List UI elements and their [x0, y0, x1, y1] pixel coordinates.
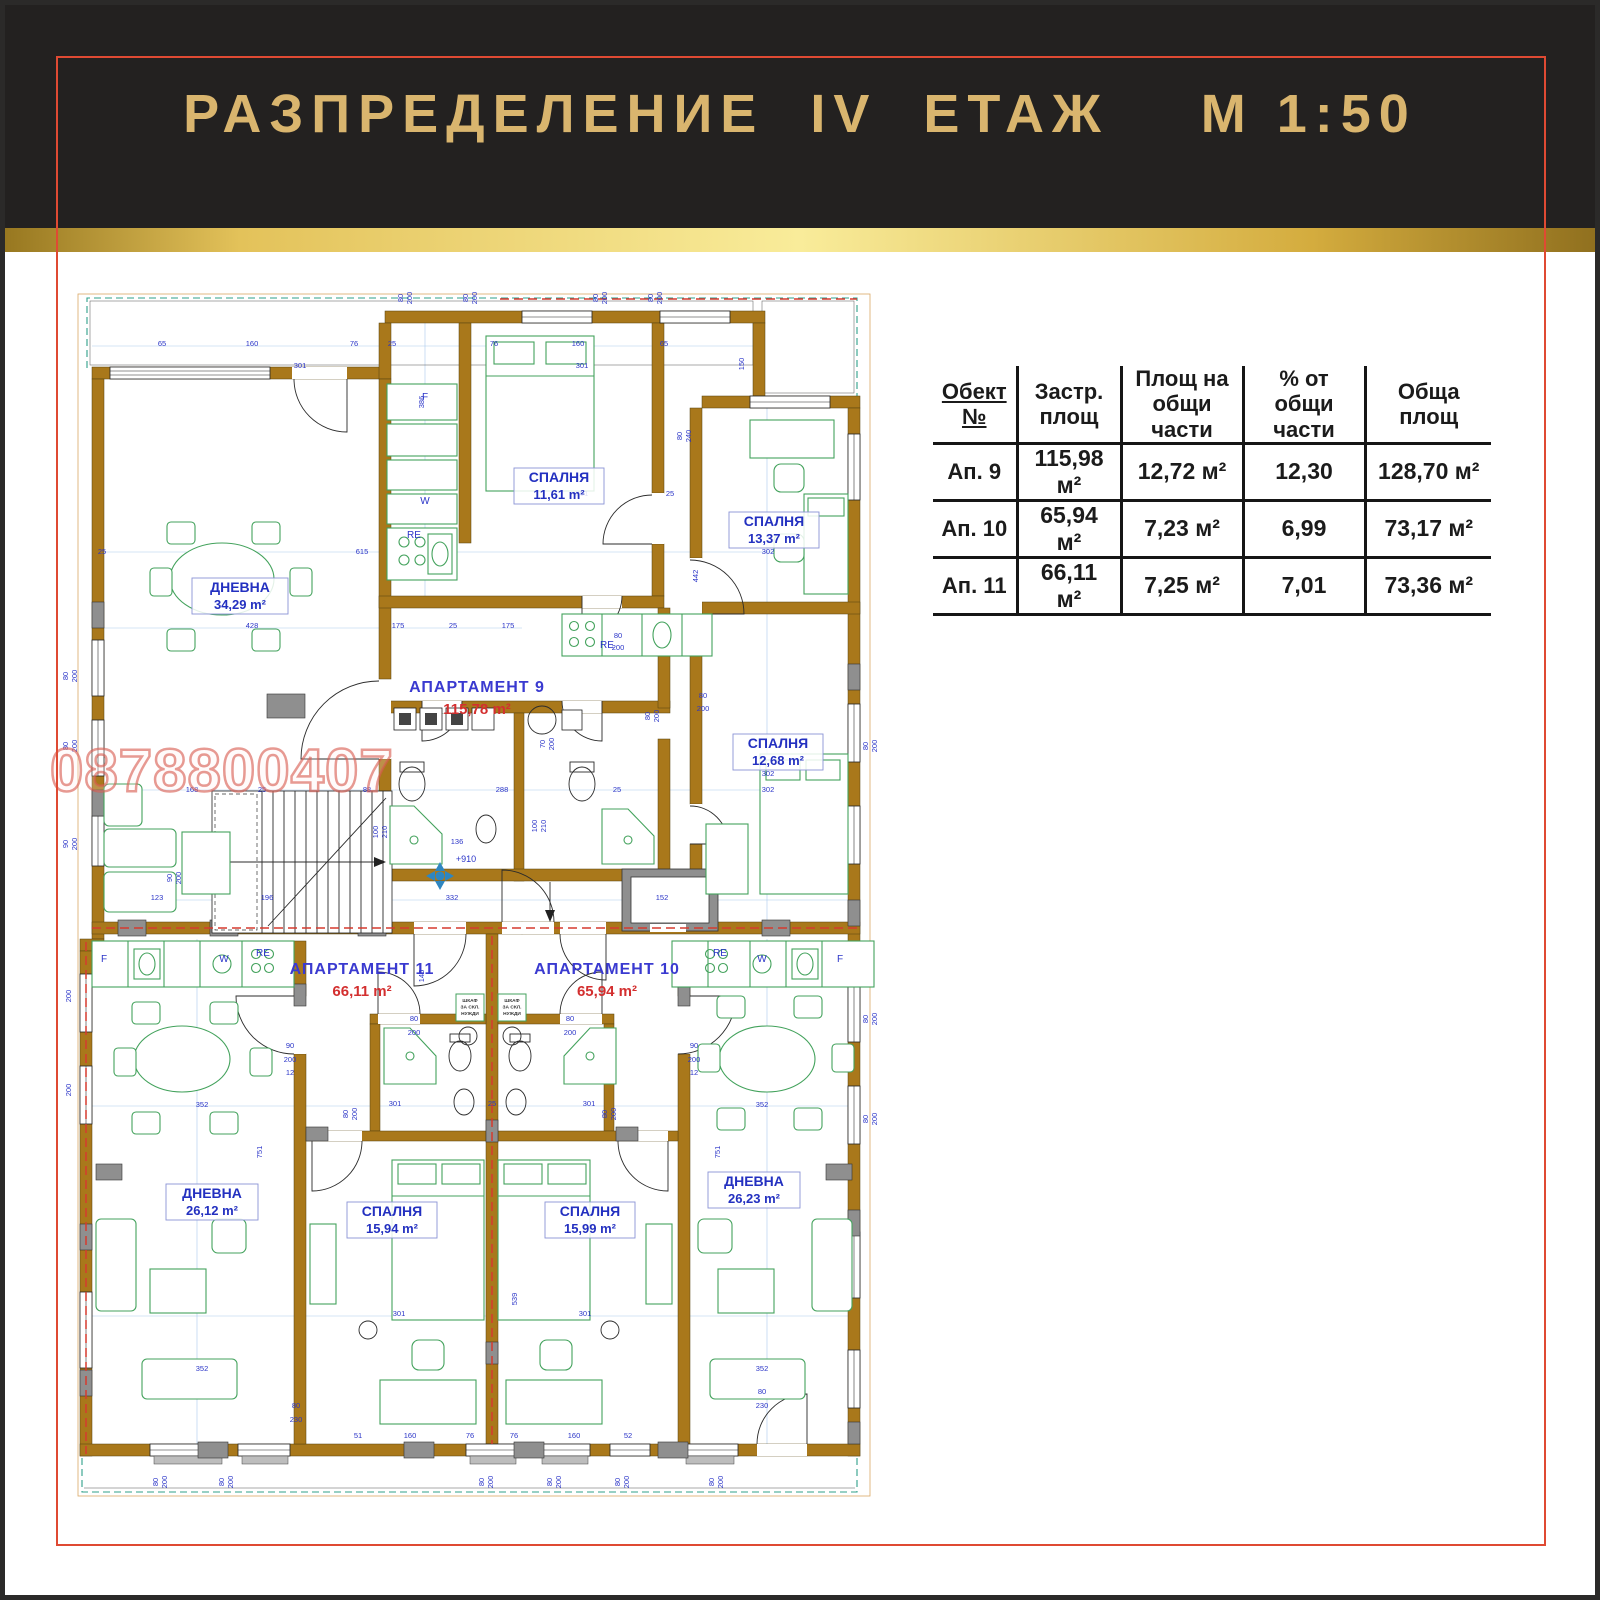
plan-text: 751 — [255, 1146, 264, 1159]
plan-text: 90 — [62, 840, 70, 848]
plan-text: 26,23 m² — [728, 1191, 781, 1206]
table-cell: 128,70 м² — [1365, 443, 1491, 500]
plan-text: СПАЛНЯ — [362, 1203, 422, 1219]
plan-text: RE — [600, 640, 614, 651]
plan-text: 88 — [363, 785, 371, 794]
plan-text: 200 — [486, 1476, 495, 1489]
plan-text: ШКАФ — [462, 998, 477, 1004]
gold-divider — [0, 228, 1600, 252]
plan-text: 200 — [226, 1476, 235, 1489]
plan-text: НУЖДИ — [503, 1011, 521, 1017]
plan-text: СПАЛНЯ — [748, 735, 808, 751]
plan-text: 352 — [196, 1364, 209, 1373]
plan-text: 160 — [572, 339, 585, 348]
plan-text: 160 — [568, 1431, 581, 1440]
plan-text: 200 — [70, 740, 79, 753]
plan-text: 210 — [539, 820, 548, 833]
plan-text: 15,94 m² — [366, 1221, 419, 1236]
plan-text: ДНЕВНА — [182, 1185, 242, 1201]
plan-text: 76 — [466, 1431, 474, 1440]
plan-text: 80 — [699, 691, 707, 700]
table-cell: Ап. 11 — [933, 557, 1017, 614]
plan-text: 301 — [576, 361, 589, 370]
plan-text: 196 — [261, 893, 274, 902]
plan-text: F — [837, 954, 843, 965]
plan-text: 80 — [477, 1478, 486, 1486]
plan-text: 80 — [675, 432, 684, 440]
plan-text: СПАЛНЯ — [560, 1203, 620, 1219]
plan-text: 302 — [762, 785, 775, 794]
table-row: Ап. 9115,98 м²12,72 м²12,30128,70 м² — [933, 443, 1491, 500]
plan-text: F — [101, 954, 107, 965]
table-row: Ап. 1166,11 м²7,25 м²7,0173,36 м² — [933, 557, 1491, 614]
plan-text: 80 — [62, 672, 70, 680]
plan-text: 200 — [284, 1055, 297, 1064]
plan-text: 200 — [564, 1028, 577, 1037]
plan-text: 100 — [371, 826, 380, 839]
plan-text: 80 — [861, 1015, 870, 1023]
plan-text: 200 — [405, 292, 414, 305]
plan-text: 200 — [64, 990, 73, 1003]
table-header-row: Обект №Застр. площПлощ на общи части% от… — [933, 366, 1491, 443]
staircase — [212, 791, 392, 933]
plan-text: 25 — [666, 489, 674, 498]
plan-text: ДНЕВНА — [724, 1173, 784, 1189]
plan-text: 66,11 m² — [332, 983, 391, 1000]
plan-text: 428 — [246, 621, 259, 630]
plan-text: ШКАФ — [504, 998, 519, 1004]
plan-text: 168 — [186, 785, 199, 794]
plan-text: 80 — [217, 1478, 226, 1486]
plan-text: 80 — [861, 742, 870, 750]
plan-text: 240 — [684, 430, 693, 443]
plan-text: 175 — [392, 621, 405, 630]
plan-text: 65 — [158, 339, 166, 348]
plan-text: ДНЕВНА — [210, 579, 270, 595]
plan-text: 90 — [165, 874, 174, 882]
plan-text: 200 — [870, 1013, 879, 1026]
plan-text: 210 — [380, 826, 389, 839]
plan-text: +910 — [456, 854, 476, 864]
plan-text: 751 — [713, 1146, 722, 1159]
plan-text: 200 — [716, 1476, 725, 1489]
plan-text: 301 — [294, 361, 307, 370]
table-column-header: % от общи части — [1243, 366, 1365, 443]
plan-text: 90 — [690, 1041, 698, 1050]
plan-text: 200 — [70, 670, 79, 683]
table-row: Ап. 1065,94 м²7,23 м²6,9973,17 м² — [933, 500, 1491, 557]
plan-text: 51 — [354, 1431, 362, 1440]
plan-text: 200 — [609, 1108, 618, 1121]
plan-text: 80 — [643, 712, 652, 720]
table-cell: 7,23 м² — [1121, 500, 1243, 557]
table-column-header: Площ на общи части — [1121, 366, 1243, 443]
plan-text: 200 — [870, 740, 879, 753]
plan-text: RE — [256, 948, 270, 959]
plan-text: 80 — [292, 1401, 300, 1410]
table-cell: 73,17 м² — [1365, 500, 1491, 557]
plan-text: 200 — [655, 292, 664, 305]
plan-text: 301 — [393, 1309, 406, 1318]
plan-text: 25 — [488, 1099, 496, 1108]
table-cell: 7,01 — [1243, 557, 1365, 614]
plan-text: 80 — [410, 1014, 418, 1023]
plan-text: W — [420, 496, 430, 507]
plan-text: 65,94 m² — [577, 983, 637, 1000]
table-column-header: Застр. площ — [1017, 366, 1121, 443]
plan-text: АПАРТАМЕНТ 11 — [290, 961, 435, 978]
plan-text: 442 — [691, 570, 700, 583]
plan-text: 80 — [545, 1478, 554, 1486]
plan-text: 25 — [258, 785, 266, 794]
plan-text: 76 — [510, 1431, 518, 1440]
plan-text: 150 — [737, 358, 746, 371]
plan-text: RE — [713, 948, 727, 959]
plan-text: W — [757, 954, 767, 965]
plan-text: 80 — [646, 294, 655, 302]
plan-text: НУЖДИ — [461, 1011, 479, 1017]
compass-icon — [426, 862, 454, 890]
plan-text: 15,99 m² — [564, 1221, 617, 1236]
plan-text: W — [219, 954, 229, 965]
plan-text: 25 — [98, 547, 106, 556]
plan-text: 200 — [64, 1084, 73, 1097]
plan-text: 200 — [547, 738, 556, 751]
plan-text: 80 — [396, 294, 405, 302]
plan-text: 12,68 m² — [752, 753, 805, 768]
plan-text: 301 — [579, 1309, 592, 1318]
plan-text: 200 — [870, 1113, 879, 1126]
plan-text: 80 — [341, 1110, 350, 1118]
plan-text: 200 — [688, 1055, 701, 1064]
plan-text: 80 — [151, 1478, 160, 1486]
plan-text: 11,61 m² — [533, 487, 585, 502]
plan-text: 80 — [461, 294, 470, 302]
plan-text: RE — [407, 530, 421, 541]
plan-text: 26,12 m² — [186, 1203, 239, 1218]
plan-text: 70 — [538, 740, 547, 748]
plan-text: 200 — [350, 1108, 359, 1121]
plan-text: 90 — [286, 1041, 294, 1050]
table-cell: Ап. 9 — [933, 443, 1017, 500]
plan-text: 115,78 m² — [443, 701, 511, 718]
table-cell: Ап. 10 — [933, 500, 1017, 557]
plan-text: АПАРТАМЕНТ 9 — [409, 679, 545, 696]
page: РАЗПРЕДЕЛЕНИЕ IV ЕТАЖ М 1:50 — [0, 0, 1600, 1600]
plan-text: 80 — [566, 1014, 574, 1023]
plan-text: 34,29 m² — [214, 597, 267, 612]
plan-text: 539 — [510, 1293, 519, 1306]
plan-text: 200 — [697, 704, 710, 713]
plan-text: 25 — [388, 339, 396, 348]
area-table: Обект №Застр. площПлощ на общи части% от… — [933, 366, 1491, 616]
plan-text: 80 — [614, 631, 622, 640]
plan-text: ЗА СКЛ. — [461, 1005, 480, 1011]
plan-text: 65 — [660, 339, 668, 348]
plan-text: 200 — [600, 292, 609, 305]
page-title: РАЗПРЕДЕЛЕНИЕ IV ЕТАЖ М 1:50 — [0, 0, 1600, 228]
plan-text: 12 — [690, 1068, 698, 1077]
plan-text: 12 — [286, 1068, 294, 1077]
plan-text: 352 — [196, 1100, 209, 1109]
plan-text: 80 — [591, 294, 600, 302]
table-cell: 115,98 м² — [1017, 443, 1121, 500]
plan-text: 200 — [470, 292, 479, 305]
plan-text: 230 — [290, 1415, 303, 1424]
plan-text: 52 — [624, 1431, 632, 1440]
table-cell: 7,25 м² — [1121, 557, 1243, 614]
plan-text: 301 — [583, 1099, 596, 1108]
plan-text: 230 — [756, 1401, 769, 1410]
plan-text: 200 — [622, 1476, 631, 1489]
plan-text: 352 — [756, 1364, 769, 1373]
title-bar: РАЗПРЕДЕЛЕНИЕ IV ЕТАЖ М 1:50 — [0, 0, 1600, 228]
plan-text: 100 — [530, 820, 539, 833]
plan-text: 615 — [356, 547, 369, 556]
plan-text: 25 — [449, 621, 457, 630]
plan-text: АПАРТАМЕНТ 10 — [534, 961, 680, 978]
plan-text: 301 — [389, 1099, 402, 1108]
plan-text: 80 — [613, 1478, 622, 1486]
plan-text: 80 — [62, 742, 70, 750]
plan-text: СПАЛНЯ — [744, 513, 804, 529]
plan-text: 80 — [861, 1115, 870, 1123]
plan-text: 160 — [404, 1431, 417, 1440]
table-cell: 65,94 м² — [1017, 500, 1121, 557]
table-cell: 12,30 — [1243, 443, 1365, 500]
floor-plan: ШКАФЗА СКЛ.НУЖДИШКАФЗА СКЛ.НУЖДИ 8020080… — [62, 284, 905, 1500]
plan-text: F — [422, 392, 428, 403]
table-cell: 66,11 м² — [1017, 557, 1121, 614]
plan-text: 200 — [554, 1476, 563, 1489]
table-cell: 12,72 м² — [1121, 443, 1243, 500]
plan-text: 288 — [496, 785, 509, 794]
plan-text: 80 — [600, 1110, 609, 1118]
plan-text: СПАЛНЯ — [529, 469, 589, 485]
plan-text: ЗА СКЛ. — [503, 1005, 522, 1011]
plan-text: 76 — [350, 339, 358, 348]
table-cell: 6,99 — [1243, 500, 1365, 557]
plan-text: 175 — [502, 621, 515, 630]
plan-text: 200 — [70, 838, 79, 851]
plan-text: 160 — [246, 339, 259, 348]
plan-text: 332 — [446, 893, 459, 902]
plan-text: 200 — [652, 710, 661, 723]
plan-text: 76 — [490, 339, 498, 348]
plan-text: 80 — [758, 1387, 766, 1396]
plan-text: 13,37 m² — [748, 531, 801, 546]
plan-text: 200 — [408, 1028, 421, 1037]
table-cell: 73,36 м² — [1365, 557, 1491, 614]
plan-text: 123 — [151, 893, 164, 902]
plan-text: 200 — [174, 872, 183, 885]
plan-text: 136 — [451, 837, 464, 846]
plan-text: 25 — [613, 785, 621, 794]
plan-text: 352 — [756, 1100, 769, 1109]
plan-text: 200 — [160, 1476, 169, 1489]
table-column-header: Обща площ — [1365, 366, 1491, 443]
plan-text: 152 — [656, 893, 669, 902]
plan-text: 80 — [707, 1478, 716, 1486]
table-column-header: Обект № — [933, 366, 1017, 443]
